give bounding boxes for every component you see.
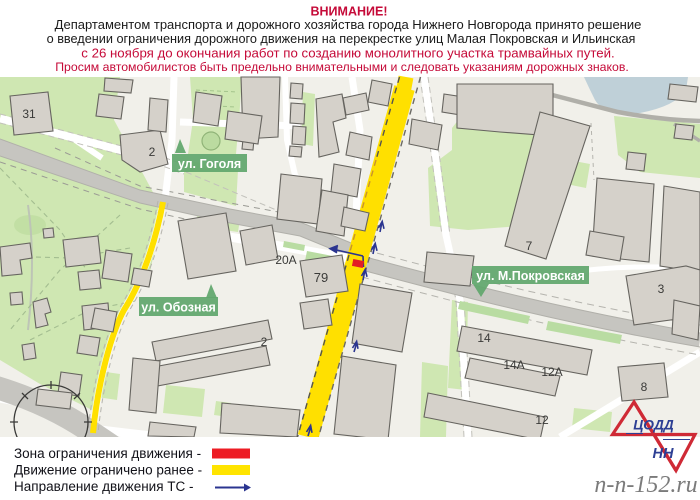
- svg-text:12А: 12А: [541, 365, 562, 379]
- svg-text:31: 31: [22, 107, 36, 121]
- svg-text:2: 2: [149, 145, 156, 159]
- svg-text:ЦОДД: ЦОДД: [633, 418, 674, 433]
- svg-text:ул. Гоголя: ул. Гоголя: [178, 157, 241, 171]
- svg-text:n-n-152.ru: n-n-152.ru: [594, 472, 697, 498]
- svg-text:Зона ограничения движения -: Зона ограничения движения -: [14, 446, 201, 461]
- svg-text:14: 14: [477, 331, 491, 345]
- svg-text:12: 12: [535, 413, 549, 427]
- svg-text:о введении ограничения дорожно: о введении ограничения дорожного движени…: [47, 32, 636, 46]
- svg-text:2: 2: [261, 335, 268, 349]
- svg-text:14А: 14А: [503, 358, 524, 372]
- svg-text:Движение ограничено ранее -: Движение ограничено ранее -: [14, 463, 202, 478]
- svg-text:79: 79: [314, 270, 328, 285]
- svg-text:Просим автомобилистов быть пре: Просим автомобилистов быть предельно вни…: [55, 60, 629, 74]
- svg-text:ул. Обозная: ул. Обозная: [141, 301, 216, 315]
- svg-text:Департаментом транспорта и дор: Департаментом транспорта и дорожного хоз…: [55, 17, 642, 32]
- svg-text:3: 3: [658, 282, 665, 296]
- svg-text:ул. М.Покровская: ул. М.Покровская: [476, 269, 585, 283]
- svg-text:Направление движения ТС -: Направление движения ТС -: [14, 479, 194, 494]
- svg-text:20А: 20А: [275, 253, 296, 267]
- svg-text:с 26 ноября до окончания работ: с 26 ноября до окончания работ по создан…: [81, 45, 614, 60]
- svg-text:8: 8: [641, 380, 648, 394]
- svg-text:7: 7: [526, 239, 533, 253]
- svg-text:НН: НН: [653, 446, 674, 462]
